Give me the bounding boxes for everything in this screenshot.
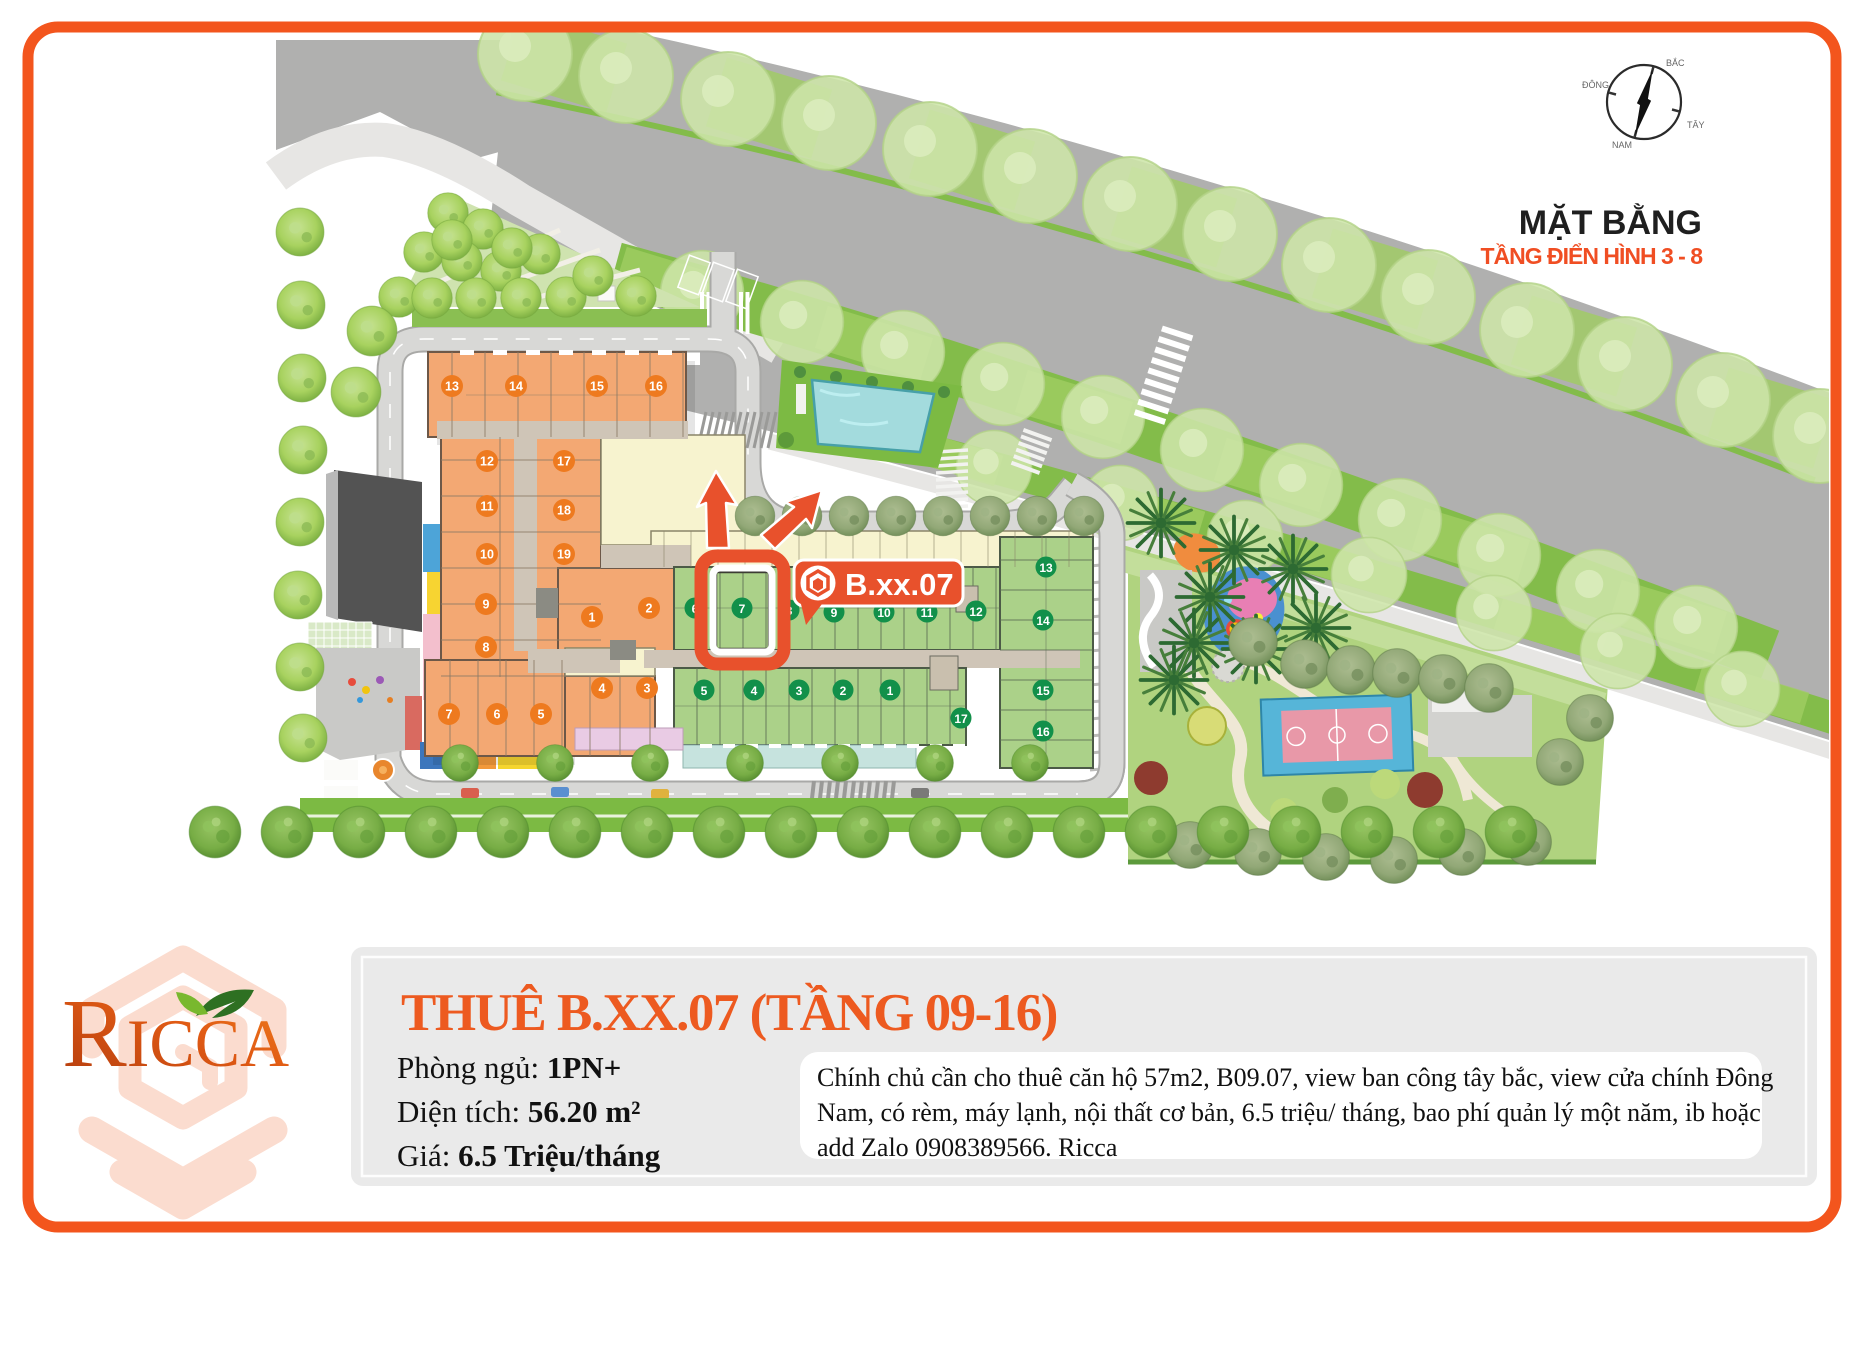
svg-text:11: 11 — [921, 606, 934, 620]
svg-text:17: 17 — [557, 455, 571, 469]
svg-text:TÂY: TÂY — [1687, 120, 1705, 130]
svg-text:ĐÔNG: ĐÔNG — [1582, 80, 1609, 90]
svg-text:14: 14 — [1036, 614, 1050, 628]
svg-text:15: 15 — [1036, 684, 1050, 698]
svg-text:8: 8 — [483, 641, 490, 655]
svg-text:Diện tích: 56.20 m²: Diện tích: 56.20 m² — [397, 1094, 640, 1129]
svg-text:12: 12 — [480, 455, 494, 469]
svg-text:14: 14 — [509, 380, 523, 394]
svg-text:7: 7 — [446, 708, 453, 722]
svg-text:4: 4 — [599, 682, 606, 696]
svg-text:2: 2 — [646, 602, 653, 616]
svg-text:10: 10 — [877, 606, 891, 620]
svg-text:9: 9 — [483, 598, 490, 612]
svg-text:3: 3 — [644, 682, 651, 696]
svg-text:11: 11 — [480, 500, 493, 514]
svg-text:9: 9 — [831, 606, 838, 620]
svg-text:BẮC: BẮC — [1666, 58, 1685, 68]
svg-text:13: 13 — [445, 380, 459, 394]
svg-text:Nam, có rèm, máy lạnh, nội thấ: Nam, có rèm, máy lạnh, nội thất cơ bản, … — [817, 1098, 1761, 1127]
svg-text:2: 2 — [840, 684, 847, 698]
svg-text:13: 13 — [1039, 561, 1053, 575]
svg-text:B.xx.07: B.xx.07 — [845, 567, 954, 602]
svg-text:NAM: NAM — [1612, 140, 1632, 150]
svg-text:MẶT BẰNG: MẶT BẰNG — [1519, 204, 1702, 242]
svg-text:15: 15 — [590, 380, 604, 394]
svg-text:add Zalo 0908389566. Ricca: add Zalo 0908389566. Ricca — [817, 1133, 1118, 1162]
svg-text:Giá: 6.5 Triệu/tháng: Giá: 6.5 Triệu/tháng — [397, 1138, 661, 1173]
svg-text:6: 6 — [494, 708, 501, 722]
svg-text:Chính chủ cần cho thuê căn hộ: Chính chủ cần cho thuê căn hộ 57m2, B09.… — [817, 1063, 1773, 1092]
svg-text:19: 19 — [557, 548, 571, 562]
svg-text:5: 5 — [538, 708, 545, 722]
svg-text:1: 1 — [589, 611, 596, 625]
svg-text:16: 16 — [1036, 725, 1050, 739]
svg-text:Phòng ngủ: 1PN+: Phòng ngủ: 1PN+ — [397, 1050, 621, 1085]
svg-text:1: 1 — [887, 684, 894, 698]
svg-text:12: 12 — [969, 605, 983, 619]
svg-text:4: 4 — [751, 684, 758, 698]
svg-text:THUÊ B.XX.07 (TẦNG 09-16): THUÊ B.XX.07 (TẦNG 09-16) — [401, 982, 1057, 1042]
svg-text:7: 7 — [739, 602, 746, 616]
svg-text:18: 18 — [557, 504, 571, 518]
svg-text:17: 17 — [954, 712, 968, 726]
svg-text:10: 10 — [480, 548, 494, 562]
svg-text:5: 5 — [701, 684, 708, 698]
svg-text:16: 16 — [649, 380, 663, 394]
svg-text:TẦNG ĐIỂN HÌNH 3 - 8: TẦNG ĐIỂN HÌNH 3 - 8 — [1480, 242, 1703, 269]
svg-text:3: 3 — [796, 684, 803, 698]
